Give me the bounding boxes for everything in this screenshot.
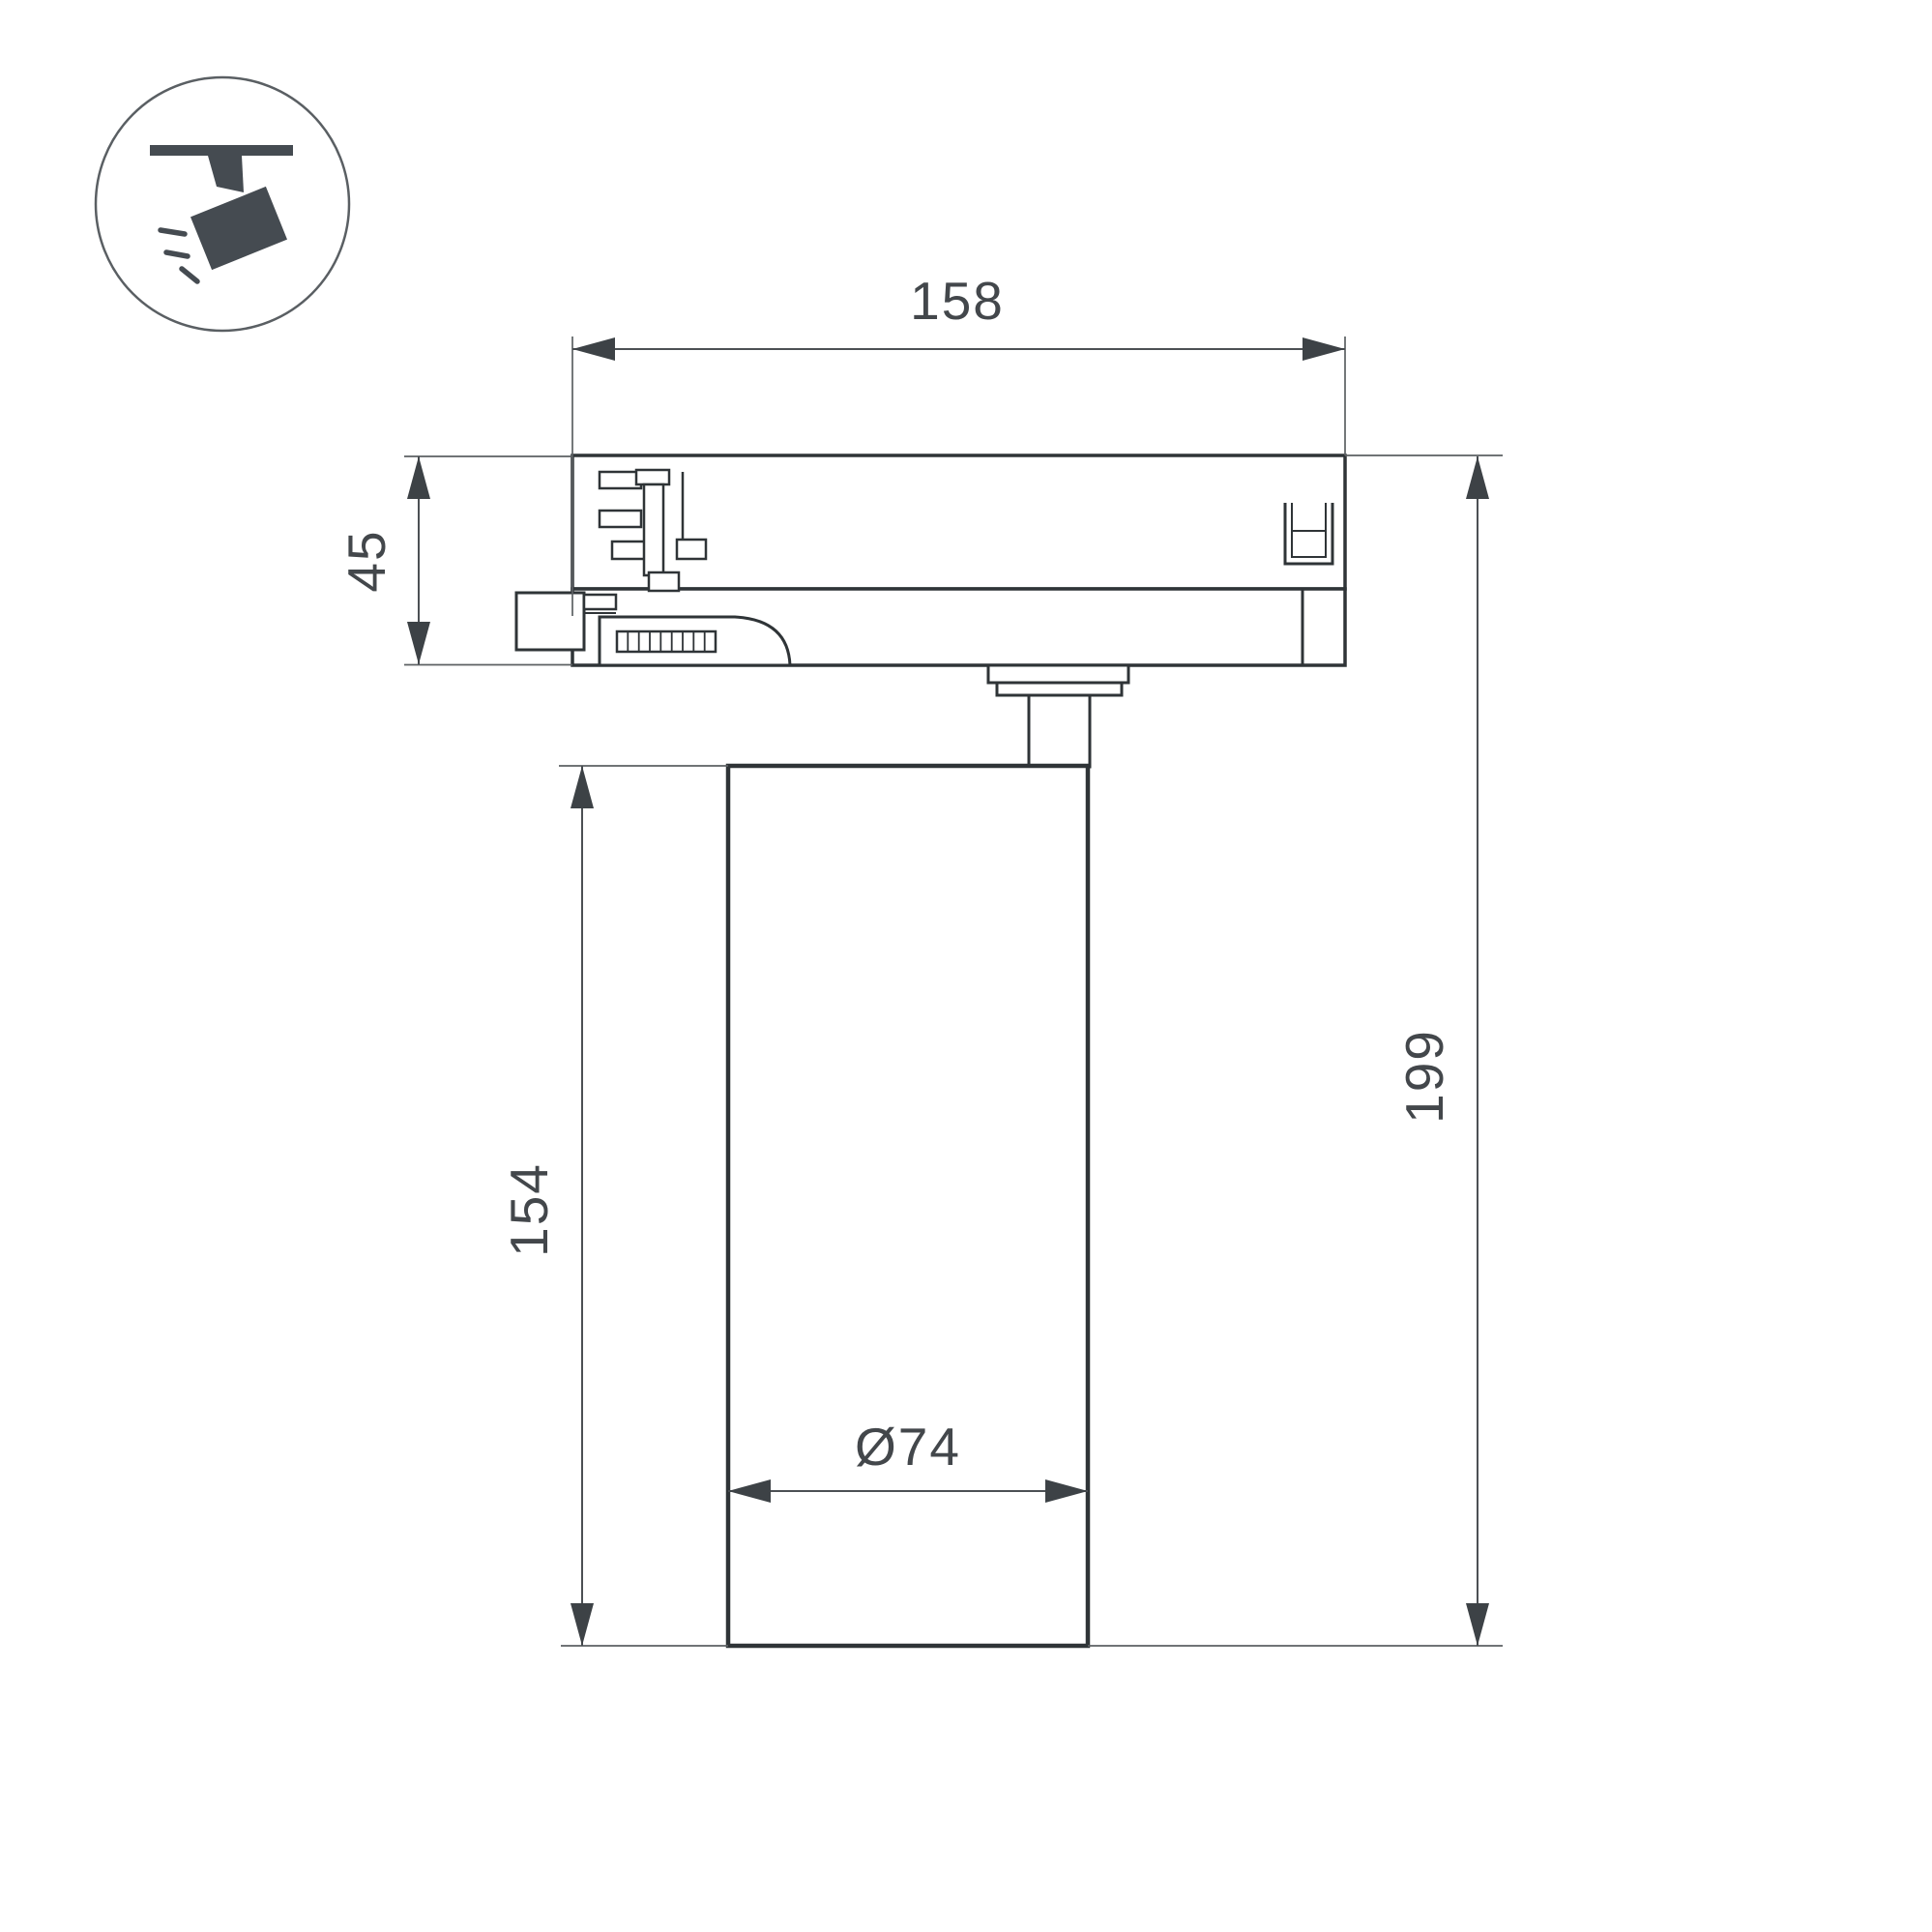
dimension-label-154: 154 (499, 1162, 559, 1257)
arrowhead-up (407, 456, 430, 499)
dimension-label-199: 199 (1394, 1029, 1454, 1124)
dimension-label-45: 45 (337, 529, 396, 592)
contact-prong-lower (612, 542, 646, 559)
dimension-body-height: 154 (499, 766, 728, 1646)
adapter-latch-block (516, 593, 584, 650)
contact-prong-middle (600, 511, 641, 527)
track-spotlight-icon (96, 77, 349, 331)
contact-prong-top (600, 472, 641, 488)
arrowhead-left (572, 337, 615, 361)
lamp-cylinder-body (728, 766, 1088, 1646)
arrowhead-up (571, 766, 594, 808)
arrowhead-down (1466, 1603, 1489, 1646)
icon-circle (96, 77, 349, 331)
arrowhead-right (1303, 337, 1345, 361)
contact-pin-body (644, 484, 663, 575)
adapter-latch-spring (584, 595, 616, 609)
icon-track-bar (150, 145, 293, 156)
contact-pin-cap (636, 470, 669, 484)
arrowhead-down (407, 622, 430, 664)
contact-right-stub (677, 540, 706, 559)
knuckle-step-2 (997, 683, 1122, 695)
knuckle-step-1 (988, 665, 1128, 683)
swivel-knuckle (988, 665, 1128, 767)
track-light-dimension-drawing: 158 45 154 199 (0, 0, 1932, 1932)
arrowhead-down (571, 1603, 594, 1646)
technical-drawing-page: 158 45 154 199 (0, 0, 1932, 1932)
adapter-lever-grip (617, 631, 716, 652)
contact-pin-foot (649, 572, 679, 591)
dimension-label-diameter: Ø74 (855, 1417, 961, 1477)
dimension-label-158: 158 (910, 271, 1005, 331)
adapter-upper-housing (572, 455, 1345, 589)
knuckle-stem (1029, 695, 1090, 767)
track-adapter (516, 455, 1345, 665)
arrowhead-up (1466, 456, 1489, 499)
